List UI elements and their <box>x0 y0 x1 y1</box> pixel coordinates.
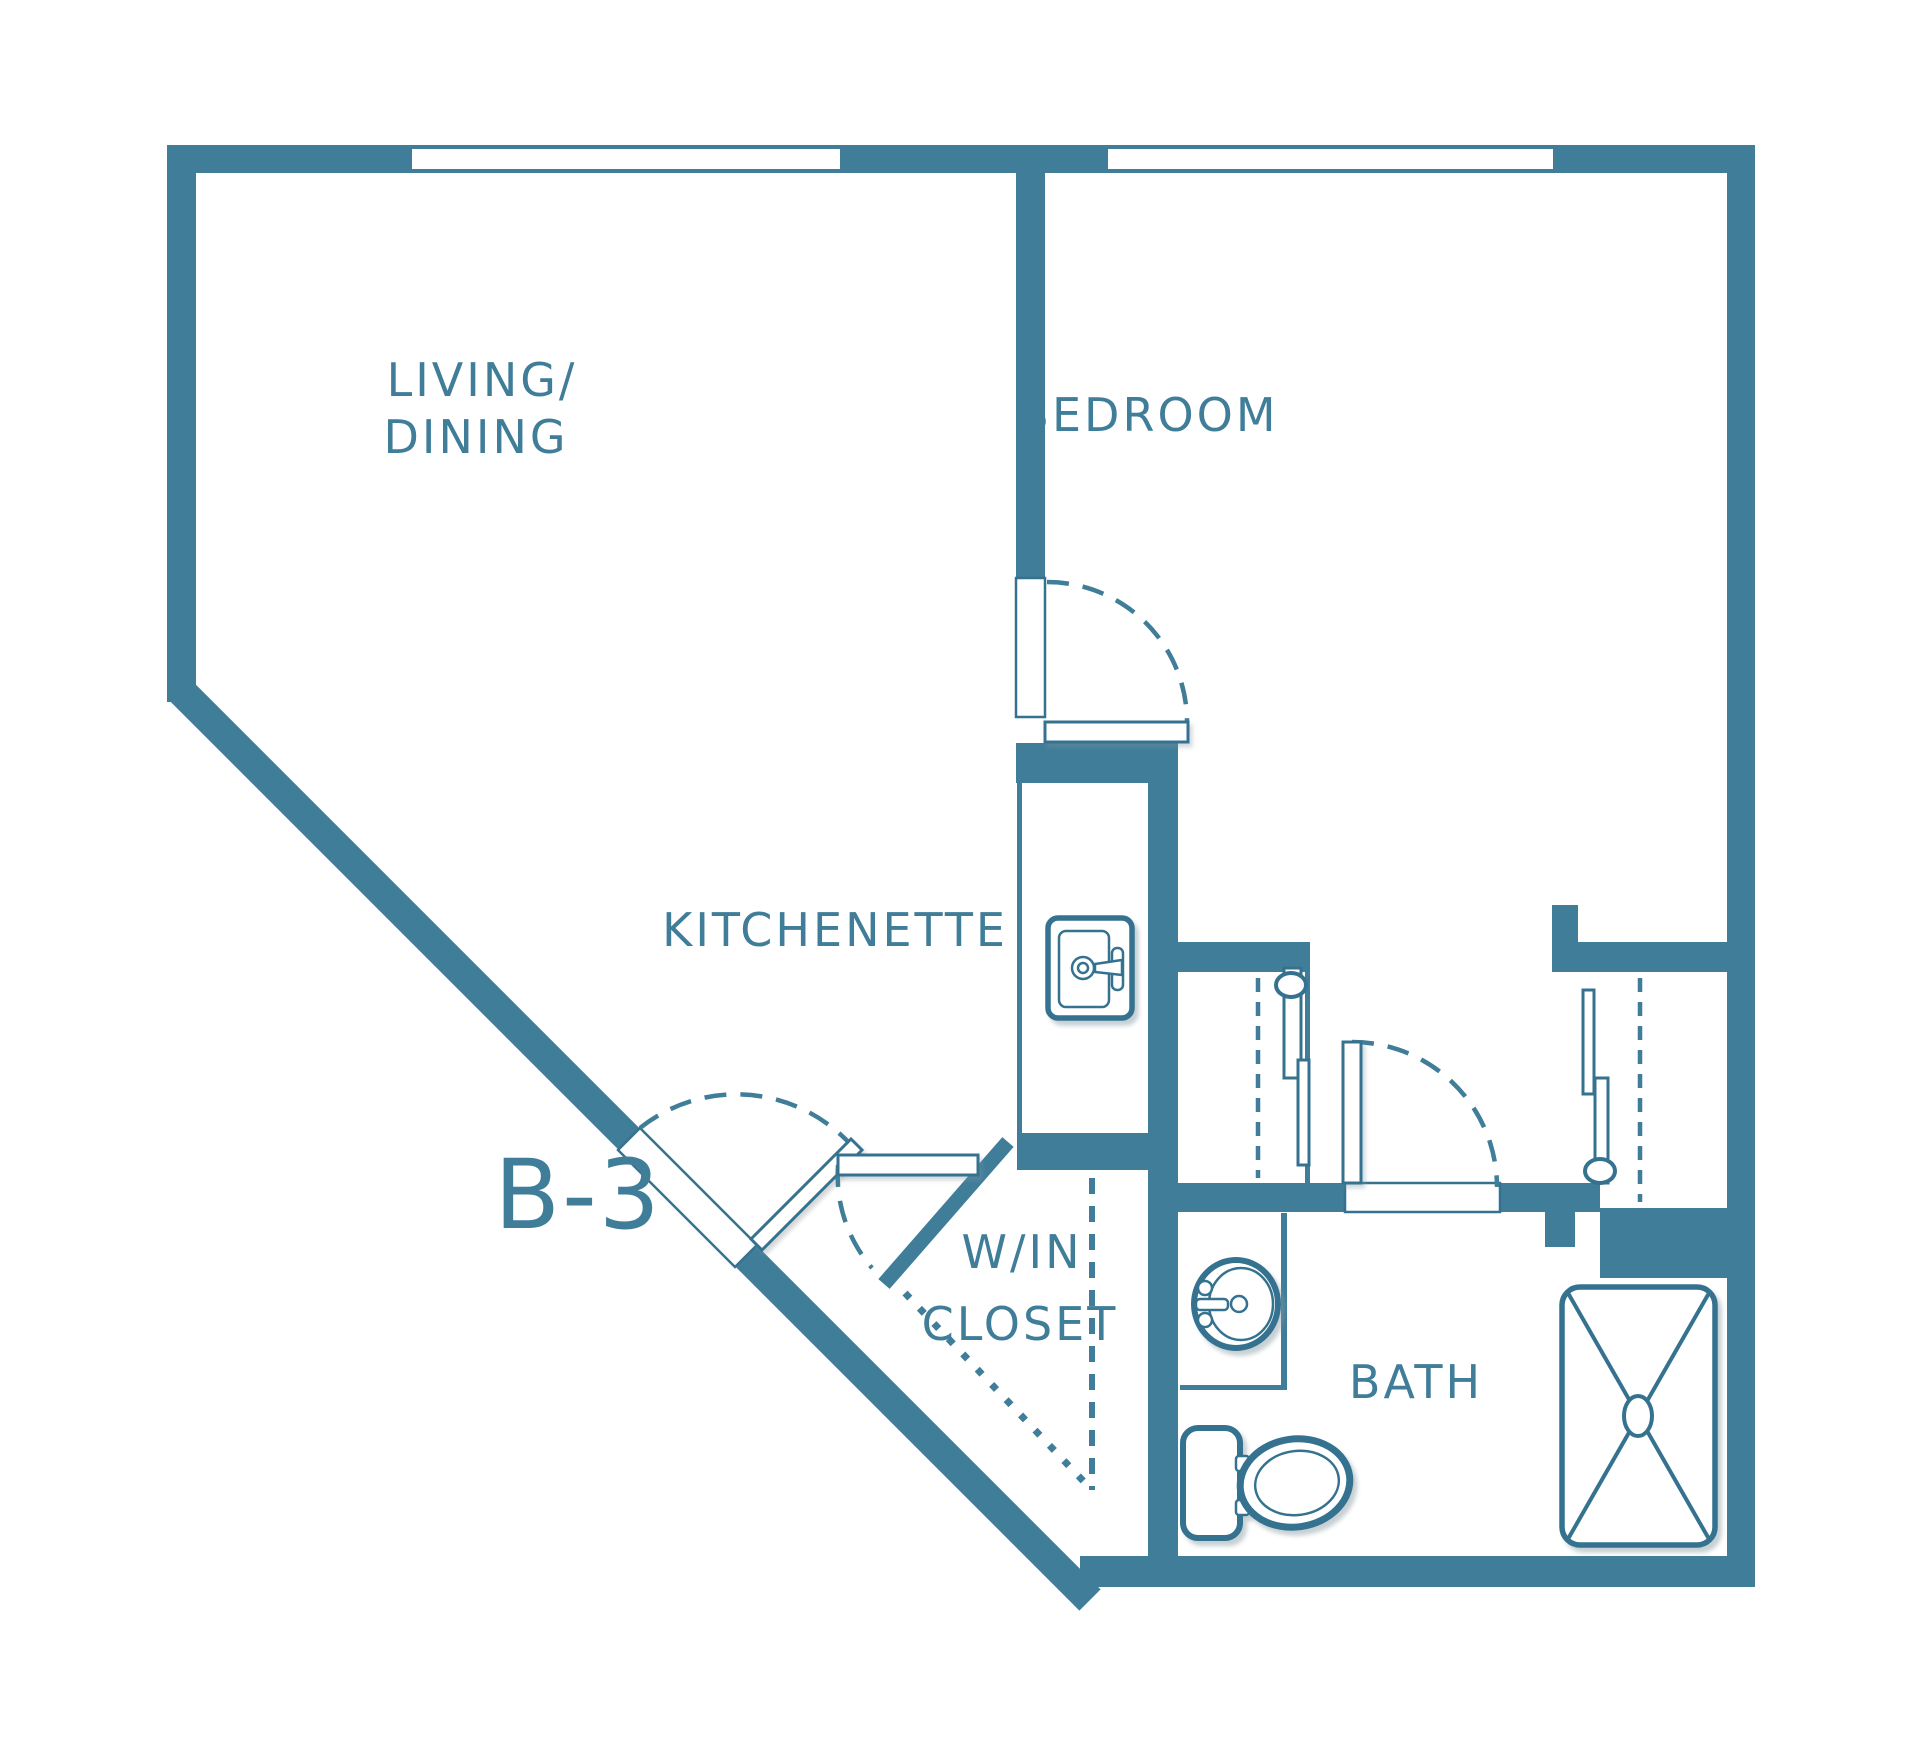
wall-right <box>1727 145 1755 1587</box>
vanity-edge-bottom <box>1180 1385 1287 1390</box>
closet-left-slider-panel <box>1298 1060 1309 1165</box>
floor-plan-drawing: LIVING/ DINING BEDROOM KITCHENETTE W/IN … <box>0 0 1920 1737</box>
closet-right <box>1583 978 1640 1202</box>
label-kitchenette: KITCHENETTE <box>662 903 1008 957</box>
wall-bath-top-left <box>1178 1183 1345 1212</box>
wall-kitchenette-bottom <box>1017 1133 1148 1170</box>
bedroom-door-opening <box>1016 578 1045 717</box>
bedroom-door-swing-arc <box>1047 582 1187 722</box>
bath-door-leaf <box>1343 1042 1361 1183</box>
bath-door-swing-arc <box>1352 1042 1497 1187</box>
window-icon <box>1108 149 1553 169</box>
wall-living-bedroom-divider <box>1016 173 1045 578</box>
label-walk-in-closet-line1: W/IN <box>962 1225 1083 1279</box>
wall-below-bedroom-door <box>1016 743 1178 783</box>
floor-plan-page: LIVING/ DINING BEDROOM KITCHENETTE W/IN … <box>0 0 1920 1737</box>
shower-icon <box>1548 1278 1727 1556</box>
wall-diagonal-upper <box>181 691 639 1149</box>
label-unit: B-3 <box>494 1139 662 1251</box>
closet-left <box>1258 968 1309 1178</box>
kitchen-sink-icon <box>1048 918 1132 1018</box>
window-icon <box>412 149 840 169</box>
bedroom-door-leaf <box>1045 722 1188 742</box>
wall-closet-right-top <box>1578 942 1727 972</box>
closet-right-handle-icon <box>1585 1159 1615 1183</box>
wall-left <box>167 145 196 702</box>
vanity-edge-right <box>1281 1213 1287 1388</box>
label-living-dining-line1: LIVING/ <box>387 353 578 407</box>
label-living-dining-line2: DINING <box>383 410 568 464</box>
closet-left-handle-icon <box>1276 973 1306 997</box>
walk-in-closet-door-swing-arc <box>838 1165 872 1268</box>
bath-door <box>1343 1042 1500 1212</box>
wall-bottom <box>1080 1556 1755 1587</box>
label-bedroom: BEDROOM <box>1017 388 1278 442</box>
wall-kitchenette-right <box>1148 783 1178 1556</box>
entry-door-swing-arc <box>640 1094 852 1146</box>
walk-in-closet-door-leaf <box>838 1155 978 1175</box>
wall-notch <box>1575 1212 1600 1247</box>
label-bath: BATH <box>1349 1355 1483 1409</box>
wall-hallway-stub <box>1552 905 1578 972</box>
bathroom-sink-icon <box>1194 1260 1278 1348</box>
wall-bath-top-right <box>1500 1183 1552 1212</box>
toilet-icon <box>1183 1428 1356 1538</box>
label-walk-in-closet-line2: CLOSET <box>922 1297 1119 1351</box>
closet-right-slider-panel <box>1583 990 1594 1094</box>
kitchenette-counter-edge <box>1017 783 1022 1133</box>
bedroom-door <box>1016 578 1188 742</box>
wall-shower-top-block <box>1600 1208 1727 1278</box>
bath-door-opening <box>1345 1183 1500 1212</box>
